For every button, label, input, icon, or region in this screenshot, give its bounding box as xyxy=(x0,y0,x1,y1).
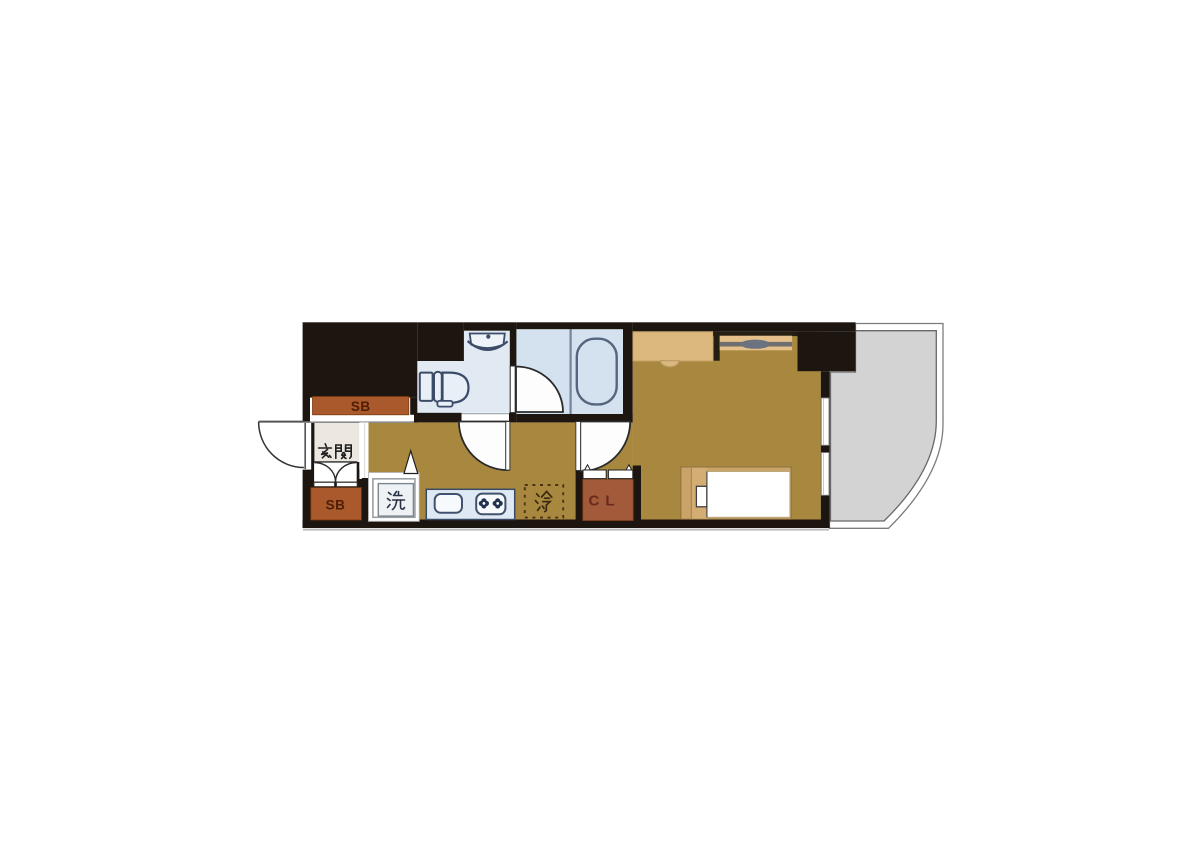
svg-text:SB: SB xyxy=(351,399,371,414)
svg-text:CL: CL xyxy=(589,492,621,509)
svg-text:SB: SB xyxy=(326,498,346,513)
